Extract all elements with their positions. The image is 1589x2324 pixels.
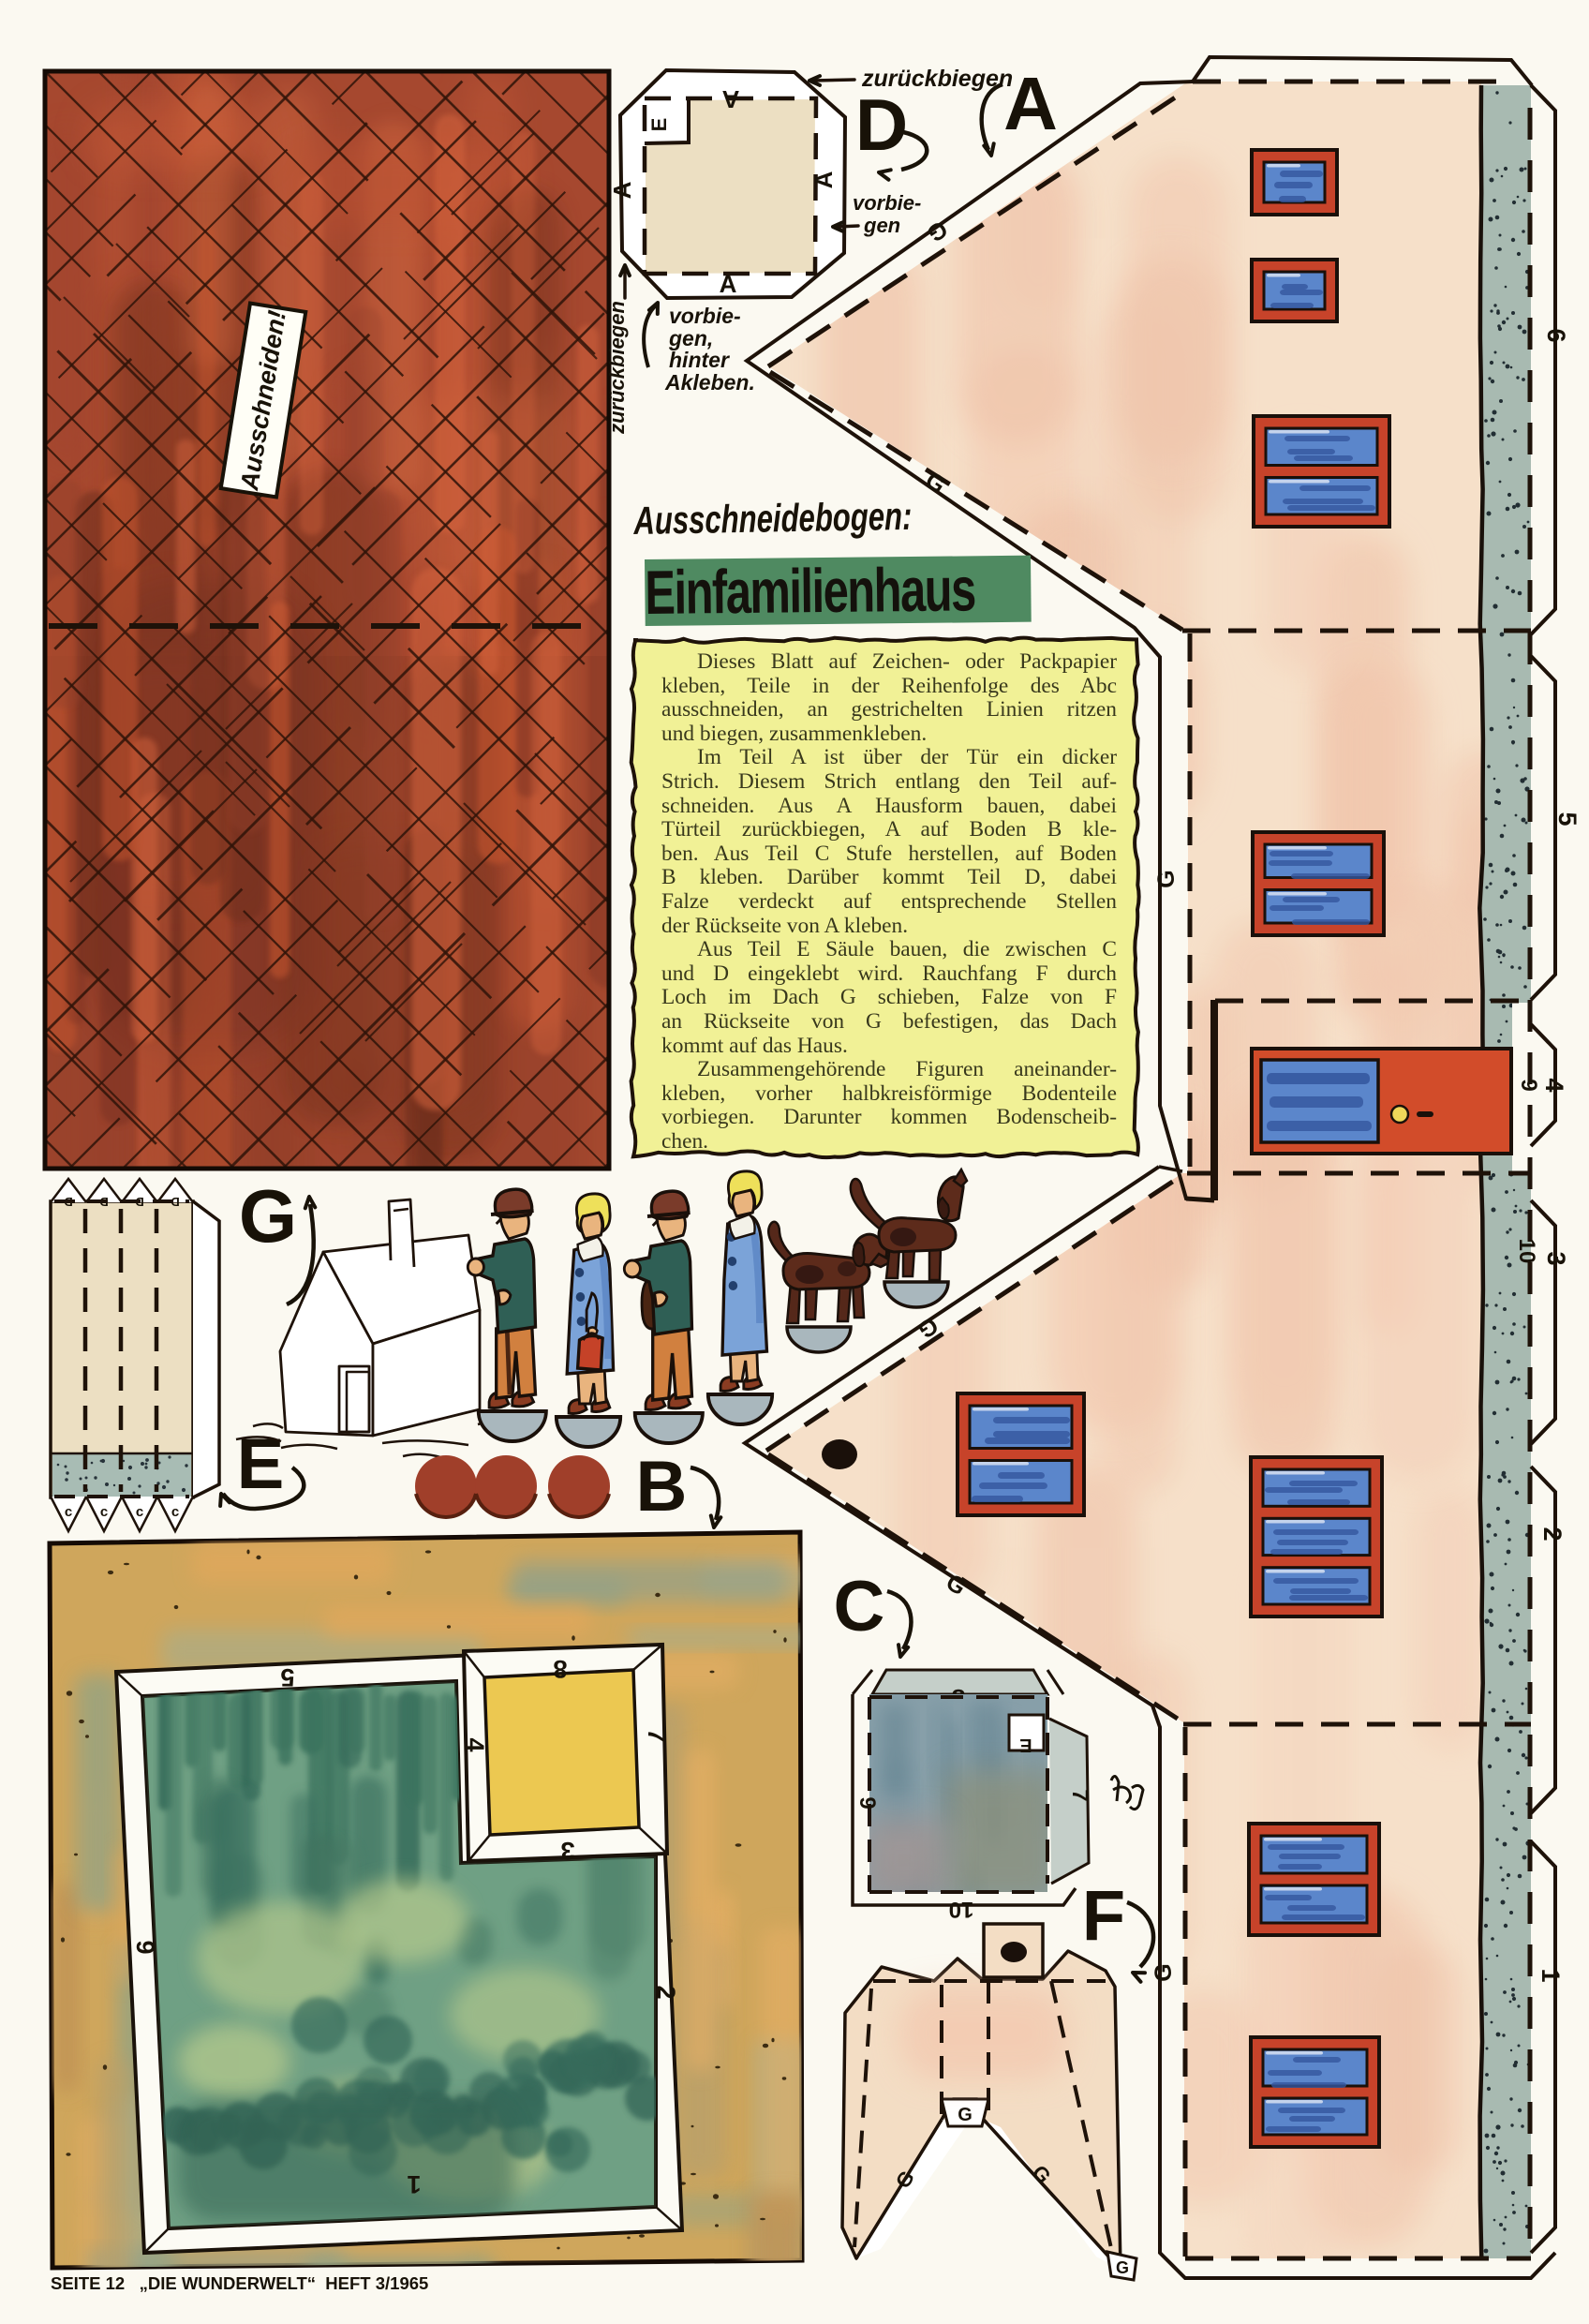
svg-text:vorbie-: vorbie- bbox=[669, 304, 741, 328]
svg-text:G: G bbox=[958, 2105, 973, 2125]
svg-text:c: c bbox=[171, 1504, 179, 1520]
svg-text:5: 5 bbox=[280, 1663, 294, 1691]
svg-text:A: A bbox=[721, 85, 739, 113]
svg-text:G: G bbox=[239, 1174, 297, 1258]
svg-text:gen: gen bbox=[863, 214, 900, 237]
svg-text:7: 7 bbox=[643, 1728, 671, 1742]
svg-text:A: A bbox=[608, 181, 636, 199]
svg-text:E: E bbox=[1019, 1735, 1032, 1755]
svg-text:D: D bbox=[855, 83, 908, 166]
svg-text:G: G bbox=[1153, 870, 1180, 887]
svg-text:3: 3 bbox=[1542, 1251, 1570, 1265]
svg-text:6: 6 bbox=[1542, 328, 1570, 342]
svg-text:9: 9 bbox=[854, 1796, 880, 1809]
svg-text:A: A bbox=[720, 270, 737, 298]
svg-text:A: A bbox=[809, 171, 838, 188]
svg-text:hinter: hinter bbox=[669, 348, 730, 372]
svg-text:1: 1 bbox=[1537, 1968, 1565, 1982]
svg-text:5: 5 bbox=[1553, 812, 1582, 826]
svg-text:c: c bbox=[136, 1504, 143, 1520]
svg-text:7: 7 bbox=[1067, 1789, 1092, 1801]
svg-text:E: E bbox=[647, 118, 671, 132]
svg-text:4: 4 bbox=[461, 1737, 489, 1751]
svg-text:Akleben.: Akleben. bbox=[664, 370, 755, 395]
svg-text:1: 1 bbox=[407, 2170, 421, 2198]
svg-text:2: 2 bbox=[1538, 1527, 1567, 1541]
svg-text:B: B bbox=[636, 1447, 688, 1527]
svg-text:10: 10 bbox=[1514, 1239, 1539, 1264]
svg-text:c: c bbox=[100, 1504, 108, 1520]
svg-text:G: G bbox=[1116, 2258, 1129, 2277]
svg-text:c: c bbox=[65, 1504, 72, 1520]
svg-text:8: 8 bbox=[553, 1655, 567, 1683]
svg-text:9: 9 bbox=[1516, 1079, 1541, 1091]
svg-text:9: 9 bbox=[131, 1940, 159, 1954]
svg-text:G: G bbox=[1151, 1963, 1177, 1981]
svg-text:F: F bbox=[1082, 1876, 1125, 1956]
svg-text:C: C bbox=[834, 1567, 885, 1646]
svg-text:vorbie-: vorbie- bbox=[853, 191, 921, 215]
svg-text:A: A bbox=[1003, 62, 1058, 145]
svg-text:zurückbiegen: zurückbiegen bbox=[605, 301, 629, 435]
svg-text:3: 3 bbox=[560, 1837, 574, 1865]
svg-text:4: 4 bbox=[1540, 1078, 1568, 1092]
svg-text:10: 10 bbox=[949, 1897, 974, 1922]
svg-text:2: 2 bbox=[652, 1985, 680, 1999]
